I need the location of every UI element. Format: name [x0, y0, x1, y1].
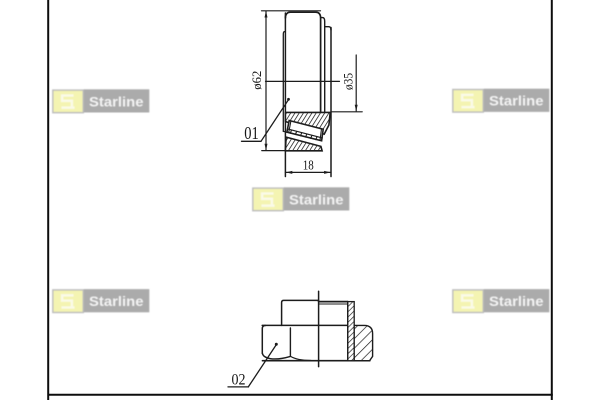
- svg-text:ø35: ø35: [341, 73, 355, 90]
- svg-text:01: 01: [244, 123, 258, 143]
- svg-text:ø62: ø62: [250, 71, 264, 90]
- svg-text:18: 18: [303, 158, 314, 173]
- svg-text:02: 02: [232, 372, 246, 389]
